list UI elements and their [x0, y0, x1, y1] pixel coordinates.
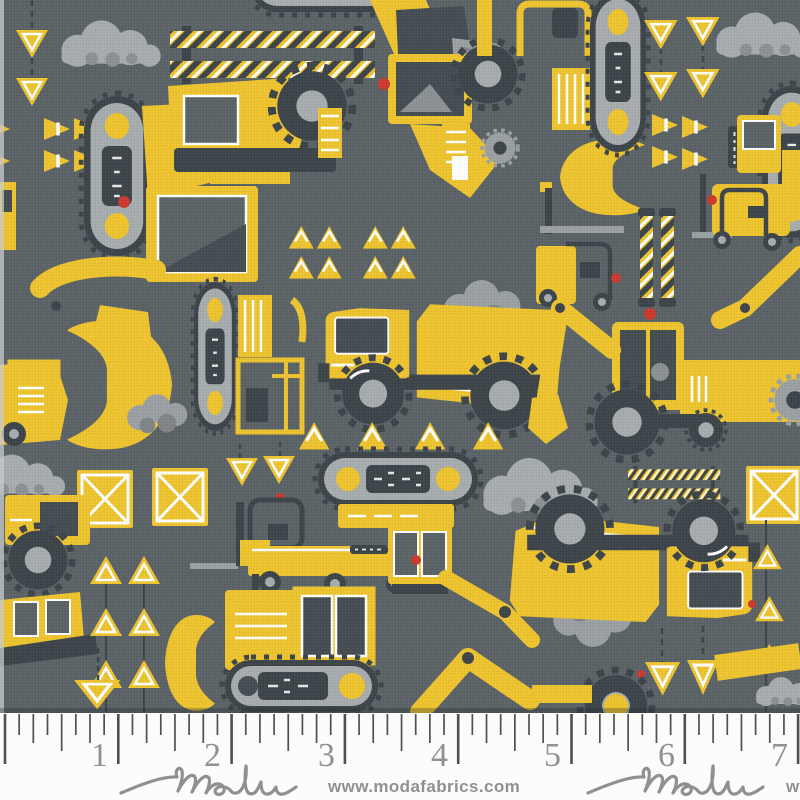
- ruler-number: 5: [544, 737, 561, 774]
- ruler-number: 6: [658, 737, 675, 774]
- fabric-swatch-photo: 1 2 3 4 5 6 7 www.modafabrics.com www.mo…: [0, 0, 800, 800]
- brand-url-partial: www.modafabrics.com: [785, 777, 800, 796]
- fabric-pattern: [0, 0, 800, 742]
- fabric-selvage-edge: [0, 0, 4, 713]
- ruler-number: 4: [431, 737, 448, 774]
- fabric-scene: 1 2 3 4 5 6 7 www.modafabrics.com www.mo…: [0, 0, 800, 800]
- ruler-number: 7: [771, 737, 788, 774]
- fabric-bottom-shadow: [0, 708, 800, 713]
- ruler-strip: 1 2 3 4 5 6 7 www.modafabrics.com www.mo…: [0, 713, 800, 800]
- ruler-number: 1: [91, 737, 108, 774]
- ruler-number: 2: [204, 737, 221, 774]
- fabric-weave-texture: [0, 0, 800, 713]
- brand-url: www.modafabrics.com: [327, 777, 520, 796]
- ruler-number: 3: [318, 737, 335, 774]
